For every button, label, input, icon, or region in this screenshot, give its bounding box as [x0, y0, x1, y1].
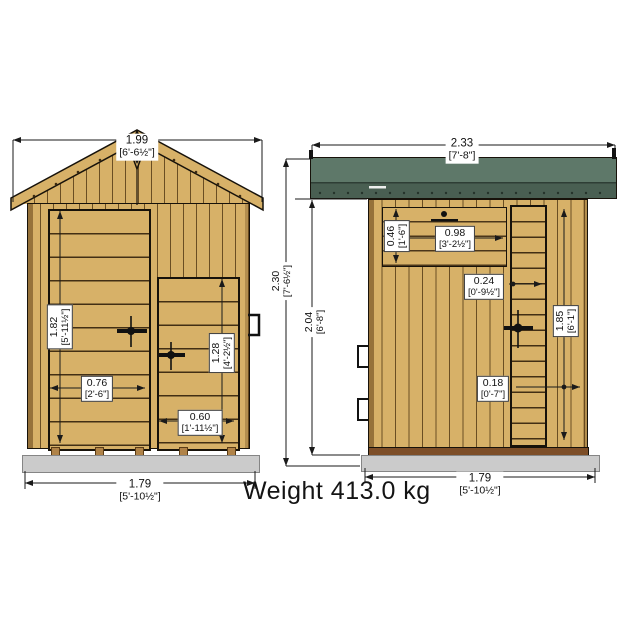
dim-vent-height: 0.46 [1'-6"]	[384, 220, 410, 252]
dim-side-ridge-height: 2.30 [7'-6½"]	[270, 262, 294, 300]
dim-side-strip-width: 0.18 [0'-7"]	[477, 376, 509, 402]
dim-front-base-width: 1.79 [5'-10½"]	[116, 478, 163, 505]
dim-side-overall-width: 2.33 [7'-8"]	[446, 137, 479, 164]
dim-front-door-height: 1.82 [5'-11½"]	[47, 305, 73, 350]
dim-store-door-height: 1.28 [4'-2½"]	[209, 333, 235, 373]
hinge-bracket	[357, 345, 368, 368]
dim-door-panel-width: 0.24 [0'-9½"]	[464, 274, 504, 300]
side-tall-door	[510, 205, 547, 447]
dim-front-roof-width: 1.99 [6'-6½"]	[116, 134, 158, 161]
dim-side-base-depth: 1.79 [5'-10½"]	[456, 472, 503, 499]
shed-dimension-diagram: 1.99 [6'-6½"] 1.82 [5'-11½"] 0.76 [2'-6"…	[0, 0, 630, 630]
front-base-slab	[22, 455, 260, 473]
dim-front-door-width: 0.76 [2'-6"]	[81, 376, 113, 402]
dim-side-door-height: 1.85 [6'-1"]	[553, 305, 579, 337]
dim-side-eaves-height: 2.04 [6'-8"]	[303, 307, 327, 337]
dim-vent-width: 0.98 [3'-2½"]	[435, 226, 475, 252]
dim-store-door-width: 0.60 [1'-11½"]	[178, 410, 223, 436]
weight-label: Weight 413.0 kg	[243, 477, 431, 506]
hinge-bracket	[357, 398, 368, 421]
side-base-slab	[361, 455, 600, 472]
